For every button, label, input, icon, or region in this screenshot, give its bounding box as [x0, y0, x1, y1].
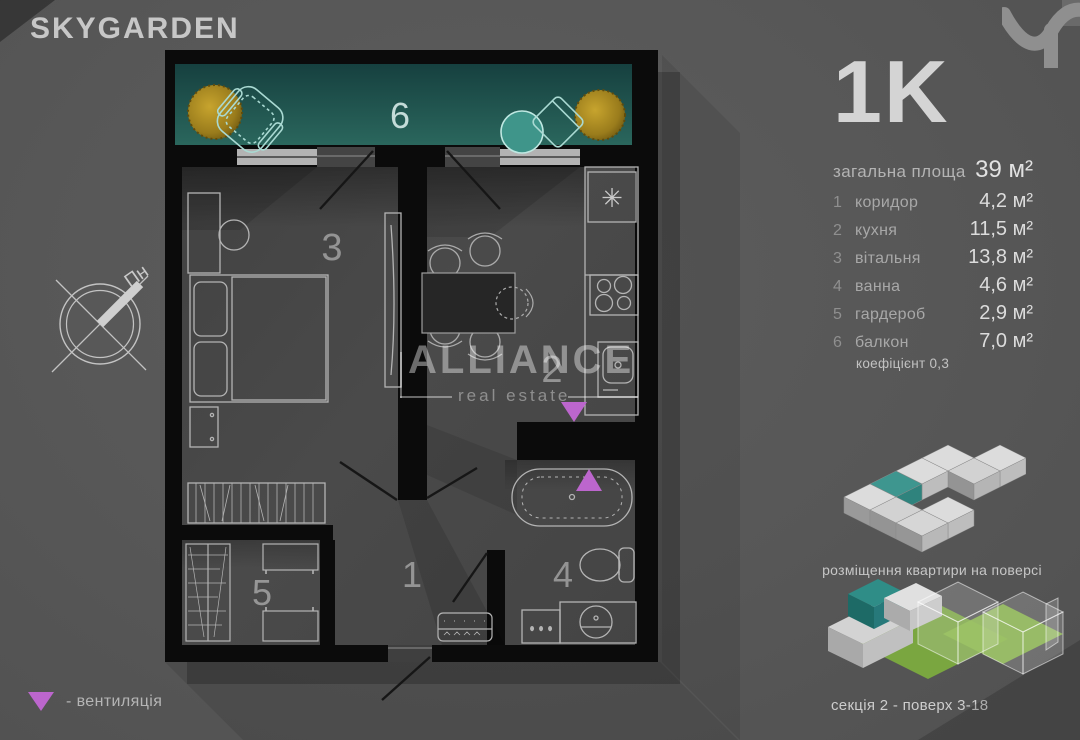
- brand-mark-icon: [1002, 0, 1080, 68]
- room-label-5: 5: [252, 572, 272, 613]
- room-label-4: 4: [553, 554, 573, 595]
- room-label-6: 6: [390, 95, 410, 136]
- floor-placement-diagram: [826, 438, 1026, 556]
- building-section-diagram: [818, 572, 1068, 694]
- room-label-3: 3: [321, 227, 342, 269]
- room-label-1: 1: [402, 554, 422, 595]
- fridge-symbol: ✳: [601, 183, 623, 213]
- dining-table-icon: [422, 273, 515, 333]
- poster: SKYGARDEN Пн: [0, 0, 1080, 740]
- compass: Пн: [38, 252, 178, 392]
- entrance-opening: [388, 645, 432, 662]
- room-label-2: 2: [541, 349, 562, 391]
- plant-icon: [575, 90, 625, 140]
- floor-plan: ✳: [160, 45, 680, 705]
- compass-north-label: Пн: [121, 261, 153, 292]
